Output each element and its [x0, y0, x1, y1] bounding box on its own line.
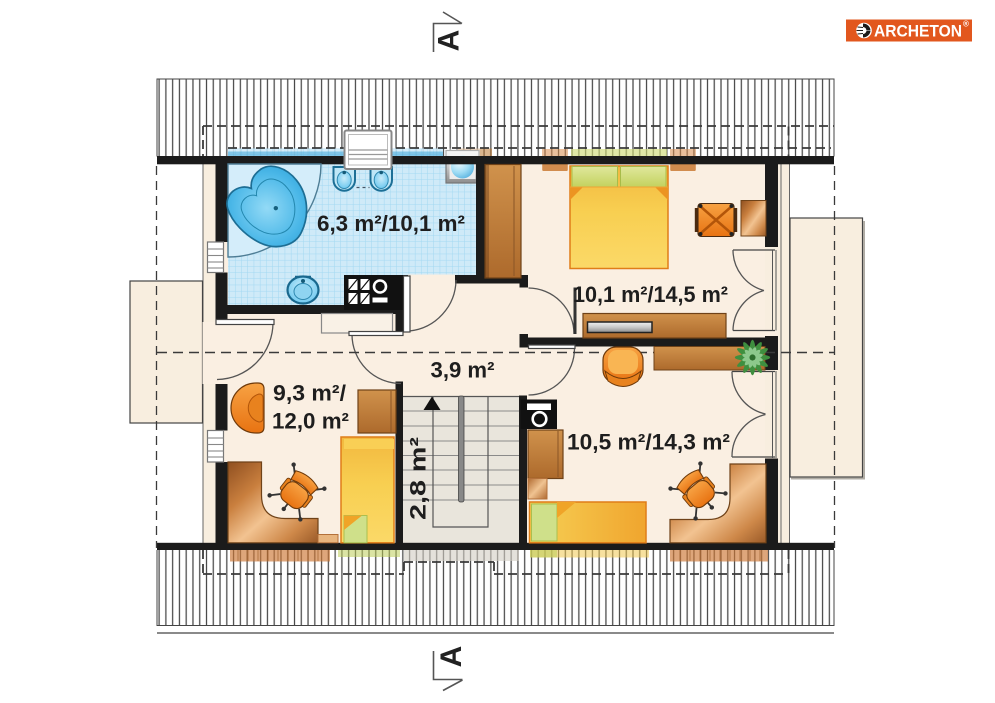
svg-text:6,3 m²/10,1 m²: 6,3 m²/10,1 m²: [317, 211, 465, 236]
svg-text:ARCHETON: ARCHETON: [874, 23, 962, 41]
svg-text:10,5 m²/14,3 m²: 10,5 m²/14,3 m²: [567, 430, 731, 455]
svg-text:®: ®: [963, 20, 969, 29]
svg-text:2,8 m²: 2,8 m²: [406, 436, 431, 520]
svg-text:10,1 m²/14,5 m²: 10,1 m²/14,5 m²: [573, 282, 728, 307]
svg-text:9,3 m²/: 9,3 m²/: [273, 381, 347, 406]
svg-text:12,0 m²: 12,0 m²: [272, 409, 349, 434]
svg-text:A: A: [433, 30, 466, 52]
svg-text:A: A: [435, 646, 468, 668]
svg-text:3,9 m²: 3,9 m²: [431, 358, 495, 383]
